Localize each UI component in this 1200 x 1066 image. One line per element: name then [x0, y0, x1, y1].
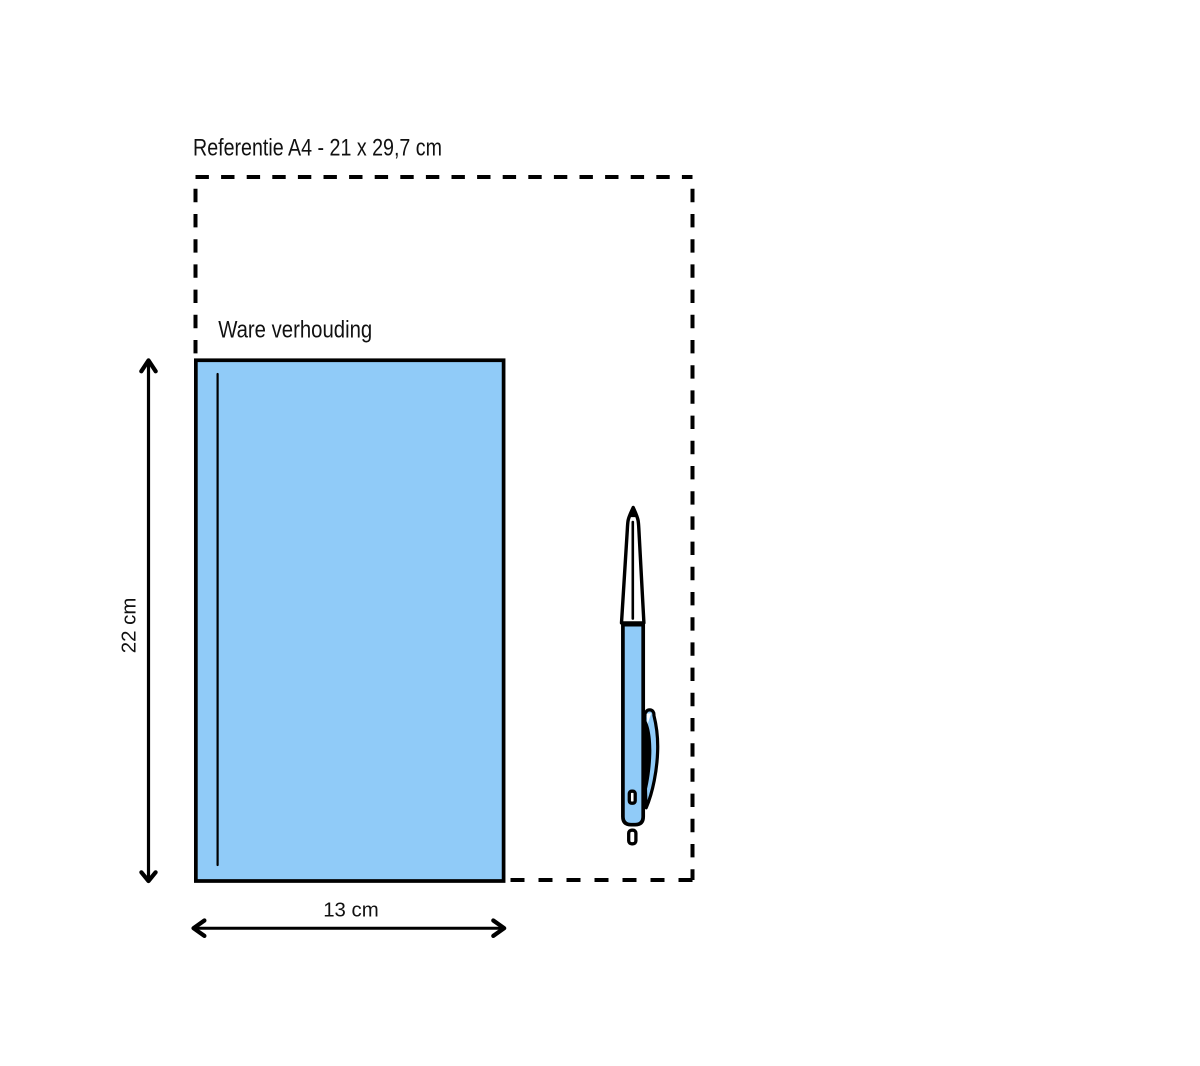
svg-text:Referentie A4 - 21 x 29,7 cm: Referentie A4 - 21 x 29,7 cm: [193, 135, 442, 162]
svg-text:13 cm: 13 cm: [323, 900, 379, 922]
svg-text:22 cm: 22 cm: [118, 598, 140, 654]
svg-text:Ware verhouding: Ware verhouding: [218, 316, 372, 343]
